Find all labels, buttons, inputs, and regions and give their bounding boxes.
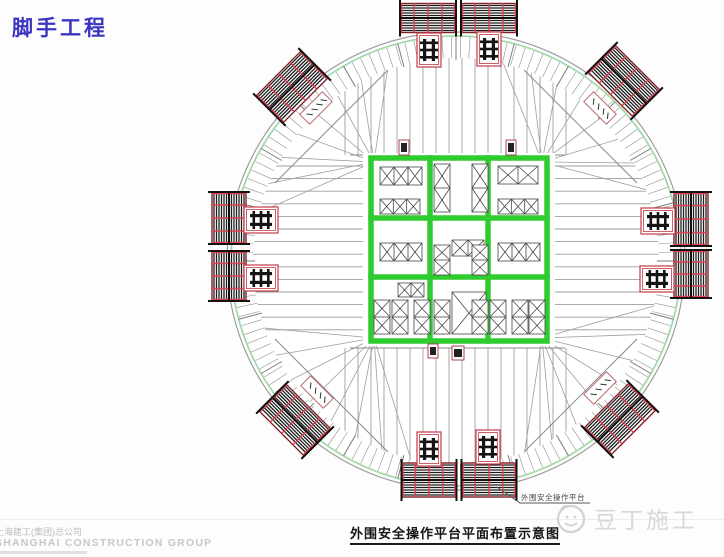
watermark-url-bar [0,551,87,554]
docin-logo: 豆丁施工 [554,501,698,535]
drawing-caption-text: 外围安全操作平台平面布置示意图 [350,523,560,545]
company-watermark: 上海建工(集团)总公司 SHANGHAI CONSTRUCTION GROUP [0,527,212,554]
floor-plan-svg [0,0,724,557]
watermark-english: SHANGHAI CONSTRUCTION GROUP [0,537,212,549]
drawing-caption: 外围安全操作平台平面布置示意图 [340,523,570,545]
watermark-chinese: 上海建工(集团)总公司 [0,527,212,537]
docin-smiley-icon [554,501,588,535]
docin-logo-text: 豆丁施工 [594,501,698,535]
